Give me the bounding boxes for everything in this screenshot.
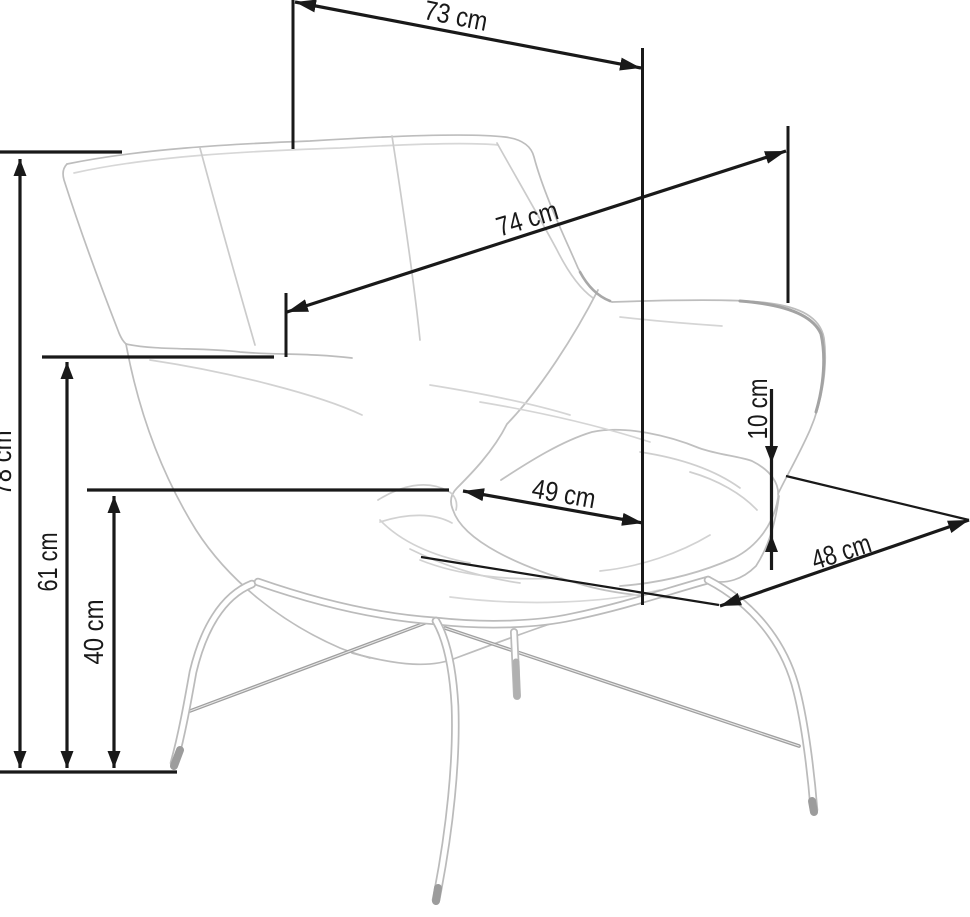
svg-text:40 cm: 40 cm [78,600,109,665]
svg-text:78 cm: 78 cm [0,431,17,496]
svg-text:10 cm: 10 cm [742,379,773,440]
svg-text:61 cm: 61 cm [32,533,63,592]
